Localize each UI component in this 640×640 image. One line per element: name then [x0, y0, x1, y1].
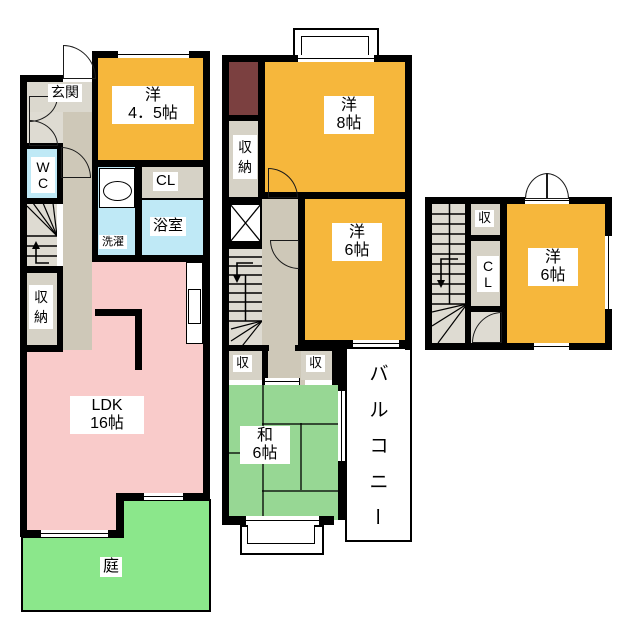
label-room-6-3f: 洋 6帖 — [528, 248, 578, 286]
label-bath: 浴室 — [150, 217, 186, 236]
wall-segment — [135, 309, 142, 370]
bay-window-bottom-inner — [247, 525, 315, 544]
wall-segment — [203, 51, 210, 500]
floor-plan: 玄関 洋 4．5帖 W C CL 浴室 洗濯 収 納 LDK 16帖 庭 — [0, 0, 640, 640]
wall-segment — [98, 160, 203, 167]
label-storage-small-left: 収 — [233, 355, 252, 372]
label-ldk: LDK 16帖 — [70, 396, 144, 434]
label-storage-2f: 収 納 — [233, 135, 257, 179]
wall-segment — [57, 266, 63, 352]
wall-segment — [465, 204, 471, 343]
wall-segment — [116, 493, 123, 537]
tatami-line — [262, 423, 345, 425]
label-laundry: 洗濯 — [99, 235, 127, 249]
wall-segment — [27, 198, 57, 204]
wall-segment — [92, 165, 98, 262]
stairs-2f — [229, 249, 262, 350]
label-storage-3f: 収 — [475, 210, 494, 227]
label-wc: W C — [31, 157, 55, 193]
wall-segment — [142, 198, 203, 200]
wall-segment — [298, 197, 305, 345]
window — [352, 340, 400, 347]
wall-segment — [471, 306, 502, 312]
window — [40, 530, 109, 537]
label-room-6-2f: 洋 6帖 — [332, 223, 382, 261]
wall-segment — [20, 345, 63, 352]
wall-segment — [92, 255, 203, 262]
wall-segment — [425, 343, 612, 350]
wall-segment — [222, 55, 229, 522]
window — [605, 235, 612, 310]
wall-segment — [229, 243, 262, 249]
stairs-3f — [432, 204, 467, 343]
label-entrance: 玄関 — [48, 84, 82, 102]
window — [143, 493, 184, 500]
label-balcony: バ ル コ ニ ー — [364, 357, 394, 532]
tatami-line — [262, 490, 345, 492]
wall-segment — [258, 62, 265, 197]
window — [245, 516, 320, 525]
stairs-1f — [27, 203, 57, 268]
wall-segment — [425, 197, 432, 350]
wall-segment — [425, 197, 612, 204]
label-closet-3f: C L — [477, 256, 499, 292]
label-room-4-5: 洋 4．5帖 — [112, 86, 194, 124]
kitchen-sink — [188, 289, 201, 324]
wall-segment — [20, 75, 27, 537]
label-garden: 庭 — [100, 557, 122, 577]
wall-segment — [471, 235, 502, 241]
void-box-icon — [229, 203, 262, 243]
sliding-glass-door — [338, 390, 345, 462]
bay-window-top-inner — [301, 36, 369, 56]
wall-segment — [229, 197, 262, 203]
window — [297, 55, 375, 62]
label-storage-small-right: 収 — [306, 355, 325, 372]
label-washitsu: 和 6帖 — [240, 426, 290, 464]
vanity-bowl-icon — [103, 181, 132, 201]
label-closet-1f: CL — [153, 172, 178, 191]
window — [117, 51, 190, 58]
tatami-line — [300, 423, 302, 490]
label-room-8: 洋 8帖 — [324, 96, 374, 134]
label-storage-1f: 収 納 — [29, 285, 53, 329]
wall-segment — [135, 165, 142, 262]
window — [533, 343, 570, 350]
wall-segment — [405, 55, 412, 350]
sliding-door — [264, 378, 300, 385]
